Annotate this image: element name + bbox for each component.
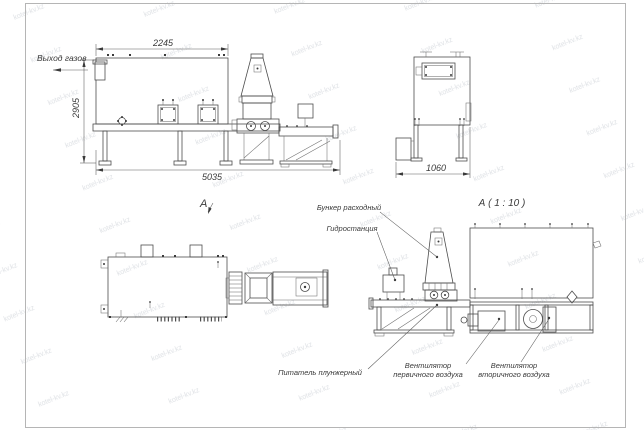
svg-text:Гидростанция: Гидростанция — [326, 224, 377, 233]
svg-text:Вентилятор: Вентилятор — [491, 361, 537, 370]
drawing-sheet: kotel-kv.kz Выход газов — [0, 0, 644, 430]
svg-text:первичного воздуха: первичного воздуха — [393, 370, 463, 379]
svg-text:Вентилятор: Вентилятор — [405, 361, 451, 370]
plan-view-label: А — [199, 198, 207, 210]
gas-outlet-stub — [93, 60, 107, 80]
detail-view-title: А ( 1 : 10 ) — [478, 198, 526, 209]
svg-text:1060: 1060 — [426, 163, 446, 173]
svg-text:Бункер расходный: Бункер расходный — [317, 203, 382, 212]
svg-text:вторичного воздуха: вторичного воздуха — [478, 370, 549, 379]
gas-outlet-label: Выход газов — [37, 53, 87, 63]
svg-text:5035: 5035 — [202, 172, 223, 182]
svg-text:Питатель плунжерный: Питатель плунжерный — [278, 368, 363, 377]
svg-text:2905: 2905 — [71, 97, 81, 119]
svg-text:2245: 2245 — [152, 38, 174, 48]
